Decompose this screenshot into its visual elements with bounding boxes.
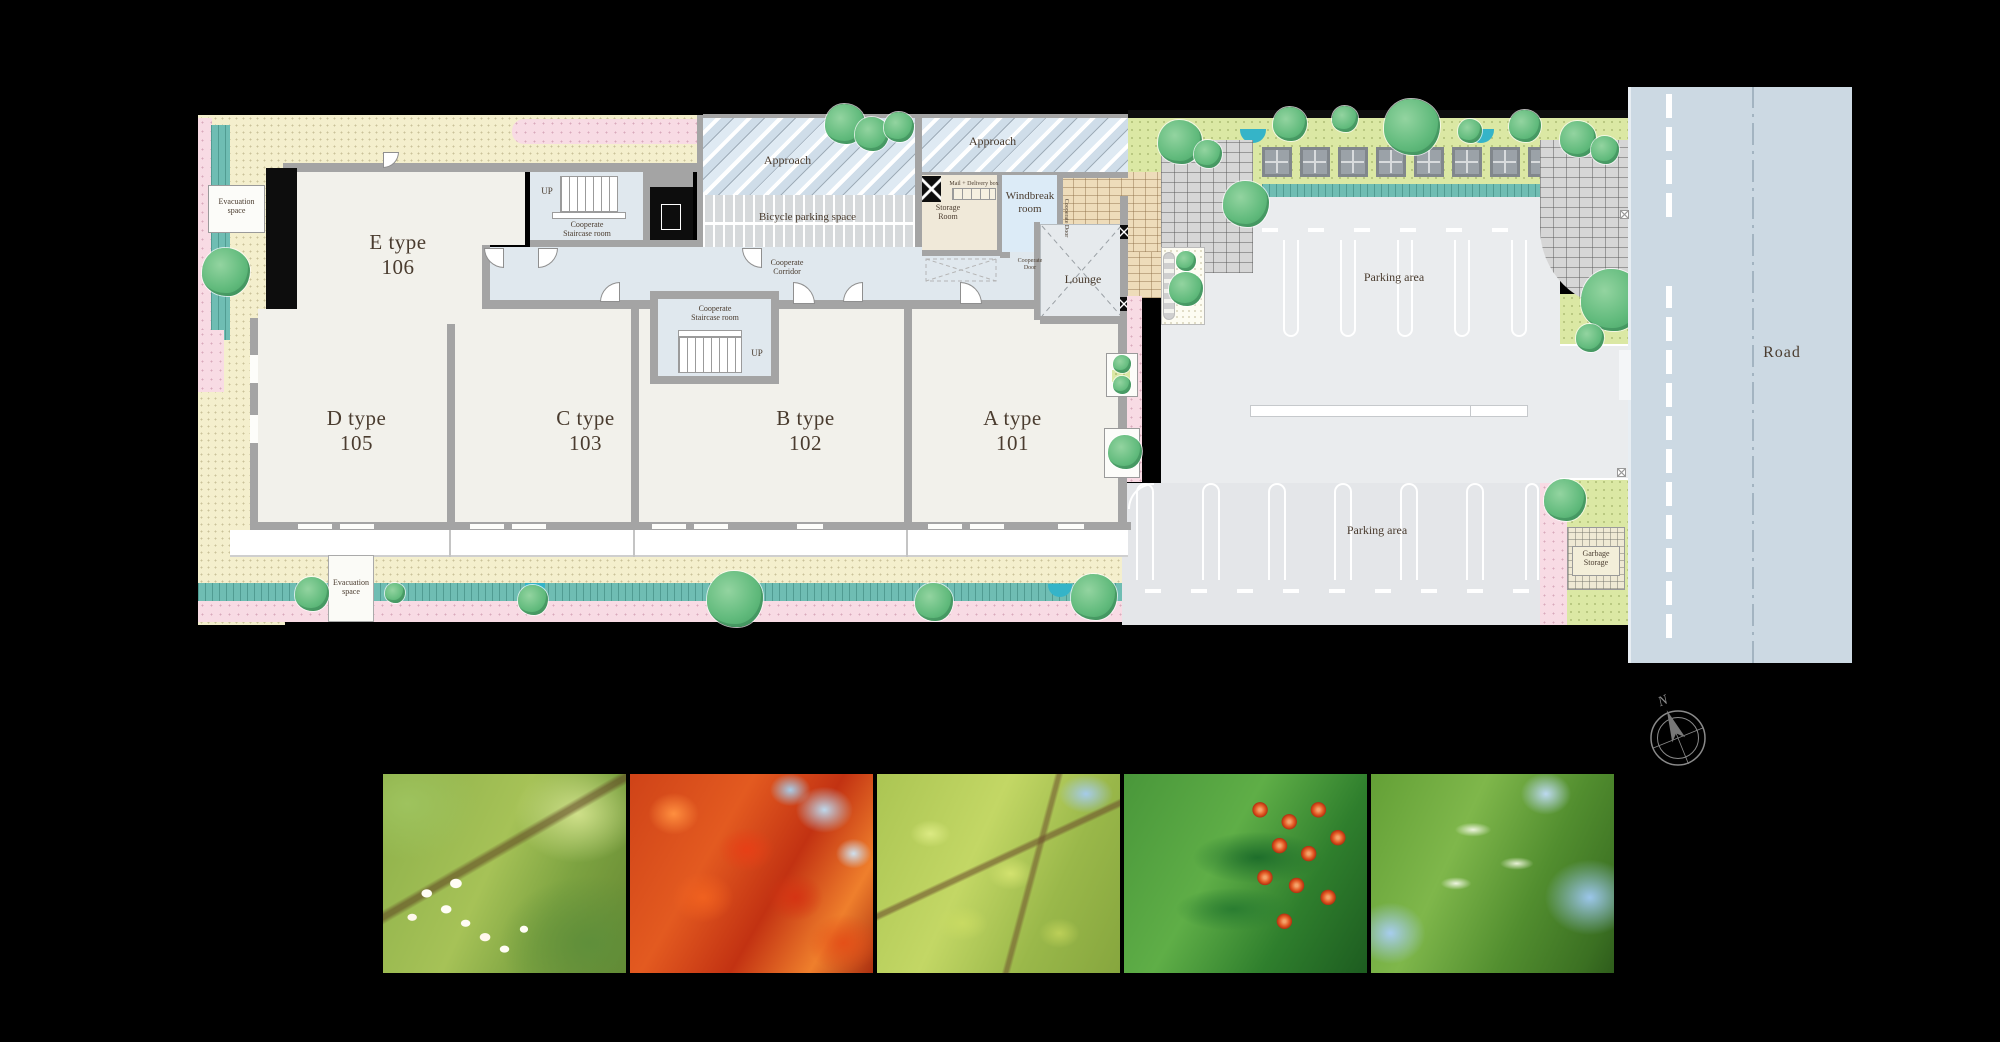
photo-fresh-green-branch: [877, 774, 1120, 973]
photo-green-canopy: [1371, 774, 1614, 973]
window: [250, 415, 258, 443]
up-label: UP: [536, 186, 558, 197]
unit-e-label: E type 106: [338, 230, 458, 280]
unit-number: 101: [950, 431, 1075, 456]
parking-stall-divider: [1466, 483, 1484, 580]
approach-label: Approach: [950, 134, 1035, 148]
balcony-divider: [906, 530, 908, 557]
unit-type: D type: [294, 406, 419, 431]
unit-a-label: A type 101: [950, 406, 1075, 456]
lounge-label: Lounge: [1048, 272, 1118, 286]
parking-wheel-stop-bar: [1250, 405, 1528, 417]
cooperate-door-label: Cooperate Door: [1062, 198, 1069, 238]
unit-number: 106: [338, 255, 458, 280]
unit-type: B type: [743, 406, 868, 431]
compass-north-label: N: [1655, 692, 1671, 710]
trellis-panel: [1262, 147, 1292, 177]
window: [512, 524, 546, 529]
wall: [922, 250, 1000, 256]
wall: [915, 118, 922, 252]
tree-icon: [1194, 140, 1222, 168]
tree-icon: [1108, 435, 1142, 469]
trellis-panel: [1452, 147, 1482, 177]
trellis-panel: [1490, 147, 1520, 177]
driveway-to-road: [1560, 345, 1628, 480]
tree-icon: [1169, 272, 1203, 306]
unit-c-label: C type 103: [523, 406, 648, 456]
garbage-storage-label: Garbage Storage: [1572, 549, 1620, 568]
tree-icon: [1458, 119, 1482, 143]
tree-icon: [884, 112, 914, 142]
compass-icon: N: [1636, 686, 1720, 778]
window: [928, 524, 962, 529]
cooperate-door-label: Cooperate Door: [1011, 258, 1049, 272]
window: [340, 524, 374, 529]
wall: [530, 240, 647, 247]
staircase-central-icon: [678, 337, 742, 373]
tree-icon: [1509, 110, 1541, 142]
window: [970, 524, 1004, 529]
tree-icon: [1113, 376, 1131, 394]
service-shaft-icon: [922, 176, 941, 202]
wall: [1000, 252, 1010, 258]
tree-icon: [1544, 479, 1586, 521]
wall: [447, 324, 455, 530]
elevator-icon: [661, 204, 681, 230]
staircase-room-label: Cooperate Staircase room: [556, 220, 618, 239]
balcony-band: [230, 530, 1128, 557]
wall: [1118, 296, 1127, 530]
bicycle-parking-label: Bicycle parking space: [735, 211, 880, 224]
tree-icon: [1071, 574, 1117, 620]
tree-icon: [518, 585, 548, 615]
unit-type: C type: [523, 406, 648, 431]
planting-pink-west-lower: [198, 330, 224, 392]
parking-stall-divider: [1525, 483, 1539, 580]
staircase-room-label: Cooperate Staircase room: [684, 304, 746, 323]
window: [694, 524, 728, 529]
tree-icon: [295, 577, 329, 611]
photo-red-maple-leaves: [630, 774, 873, 973]
parking-stall-divider: [1454, 240, 1470, 337]
tree-icon: [385, 583, 405, 603]
parking-stall-divider: [1340, 240, 1356, 337]
mail-delivery-label: Mail + Delivery box: [948, 181, 1000, 188]
road-center-line: [1752, 87, 1754, 663]
window: [250, 355, 258, 383]
unit-number: 105: [294, 431, 419, 456]
photo-styrax-flowers: [383, 774, 626, 973]
wall: [1040, 316, 1128, 324]
unit-d-label: D type 105: [294, 406, 419, 456]
storage-room-label: Storage Room: [927, 203, 969, 222]
tree-icon: [1113, 355, 1131, 373]
wall: [283, 163, 703, 172]
parking-area-label: Parking area: [1317, 523, 1437, 537]
wall: [643, 172, 650, 247]
tree-icon: [1176, 251, 1196, 271]
staircase-landing: [552, 212, 626, 219]
unit-type: A type: [950, 406, 1075, 431]
survey-mark-icon: [1620, 210, 1629, 219]
wall: [650, 172, 693, 187]
planting-pink-north-band: [512, 119, 700, 144]
wall: [697, 115, 703, 252]
photo-red-berries: [1124, 774, 1367, 973]
wall: [904, 309, 912, 522]
unit-b-label: B type 102: [743, 406, 868, 456]
wall: [647, 240, 703, 247]
hedge-north-strip: [1262, 184, 1558, 197]
tree-icon: [202, 248, 250, 296]
tree-icon: [1576, 324, 1604, 352]
parking-stall-divider: [1202, 483, 1220, 580]
parking-wheel-stop-joint: [1470, 405, 1471, 417]
parking-stall-divider: [1268, 483, 1286, 580]
staircase-landing: [678, 330, 742, 337]
windbreak-room-label: Windbreak room: [1002, 190, 1058, 216]
balcony-divider: [633, 530, 635, 557]
paving-tan-south-walk: [1127, 252, 1161, 298]
lounge-door-post: [1120, 225, 1128, 239]
approach-label: Approach: [745, 153, 830, 167]
unit-type: E type: [338, 230, 458, 255]
trellis-panel: [1338, 147, 1368, 177]
tree-icon: [1591, 136, 1619, 164]
tree-icon: [1332, 106, 1358, 132]
parking-drive-asphalt: [1161, 273, 1560, 483]
up-label: UP: [746, 348, 768, 359]
window: [1058, 524, 1084, 529]
tree-icon: [1223, 181, 1269, 227]
building-shadow-band: [266, 168, 297, 328]
window: [797, 524, 823, 529]
lounge-cross-lines: [1040, 224, 1123, 318]
parking-stall-divider: [1511, 240, 1527, 337]
parking-stopper-dashes-upper: [1262, 228, 1538, 232]
road-curb-cut: [1619, 350, 1631, 400]
parking-stopper-dashes-lower: [1145, 589, 1535, 593]
tree-icon: [1384, 99, 1440, 155]
tree-icon: [1273, 107, 1307, 141]
road-surface: [1628, 87, 1852, 663]
evacuation-space-label: Evacuation space: [210, 197, 263, 216]
survey-mark-icon: [1617, 468, 1626, 477]
evacuation-space-label: Evacuation space: [329, 578, 373, 597]
corridor-label: Cooperate Corridor: [762, 258, 812, 277]
understair-dashed-area: [925, 258, 997, 282]
window: [652, 524, 686, 529]
parking-stall-divider: [1283, 240, 1299, 337]
north-boundary-wall: [1128, 110, 1628, 118]
unit-number: 102: [743, 431, 868, 456]
tree-icon: [707, 571, 763, 627]
window: [298, 524, 332, 529]
trellis-panel: [1300, 147, 1330, 177]
road-label: Road: [1742, 344, 1822, 363]
ground-lawn-garbage-south: [1567, 592, 1628, 625]
parking-area-label: Parking area: [1334, 270, 1454, 284]
road-lane-line: [1666, 92, 1672, 217]
road-lane-line: [1666, 286, 1672, 638]
site-plan-page: N Evacuation space Evacuation space E ty…: [0, 0, 2000, 1042]
balcony-divider: [449, 530, 451, 557]
staircase-north-icon: [560, 176, 618, 212]
mail-delivery-counter: [952, 188, 996, 200]
parking-stall-divider: [1397, 240, 1413, 337]
tree-icon: [915, 583, 953, 621]
window: [470, 524, 504, 529]
unit-number: 103: [523, 431, 648, 456]
